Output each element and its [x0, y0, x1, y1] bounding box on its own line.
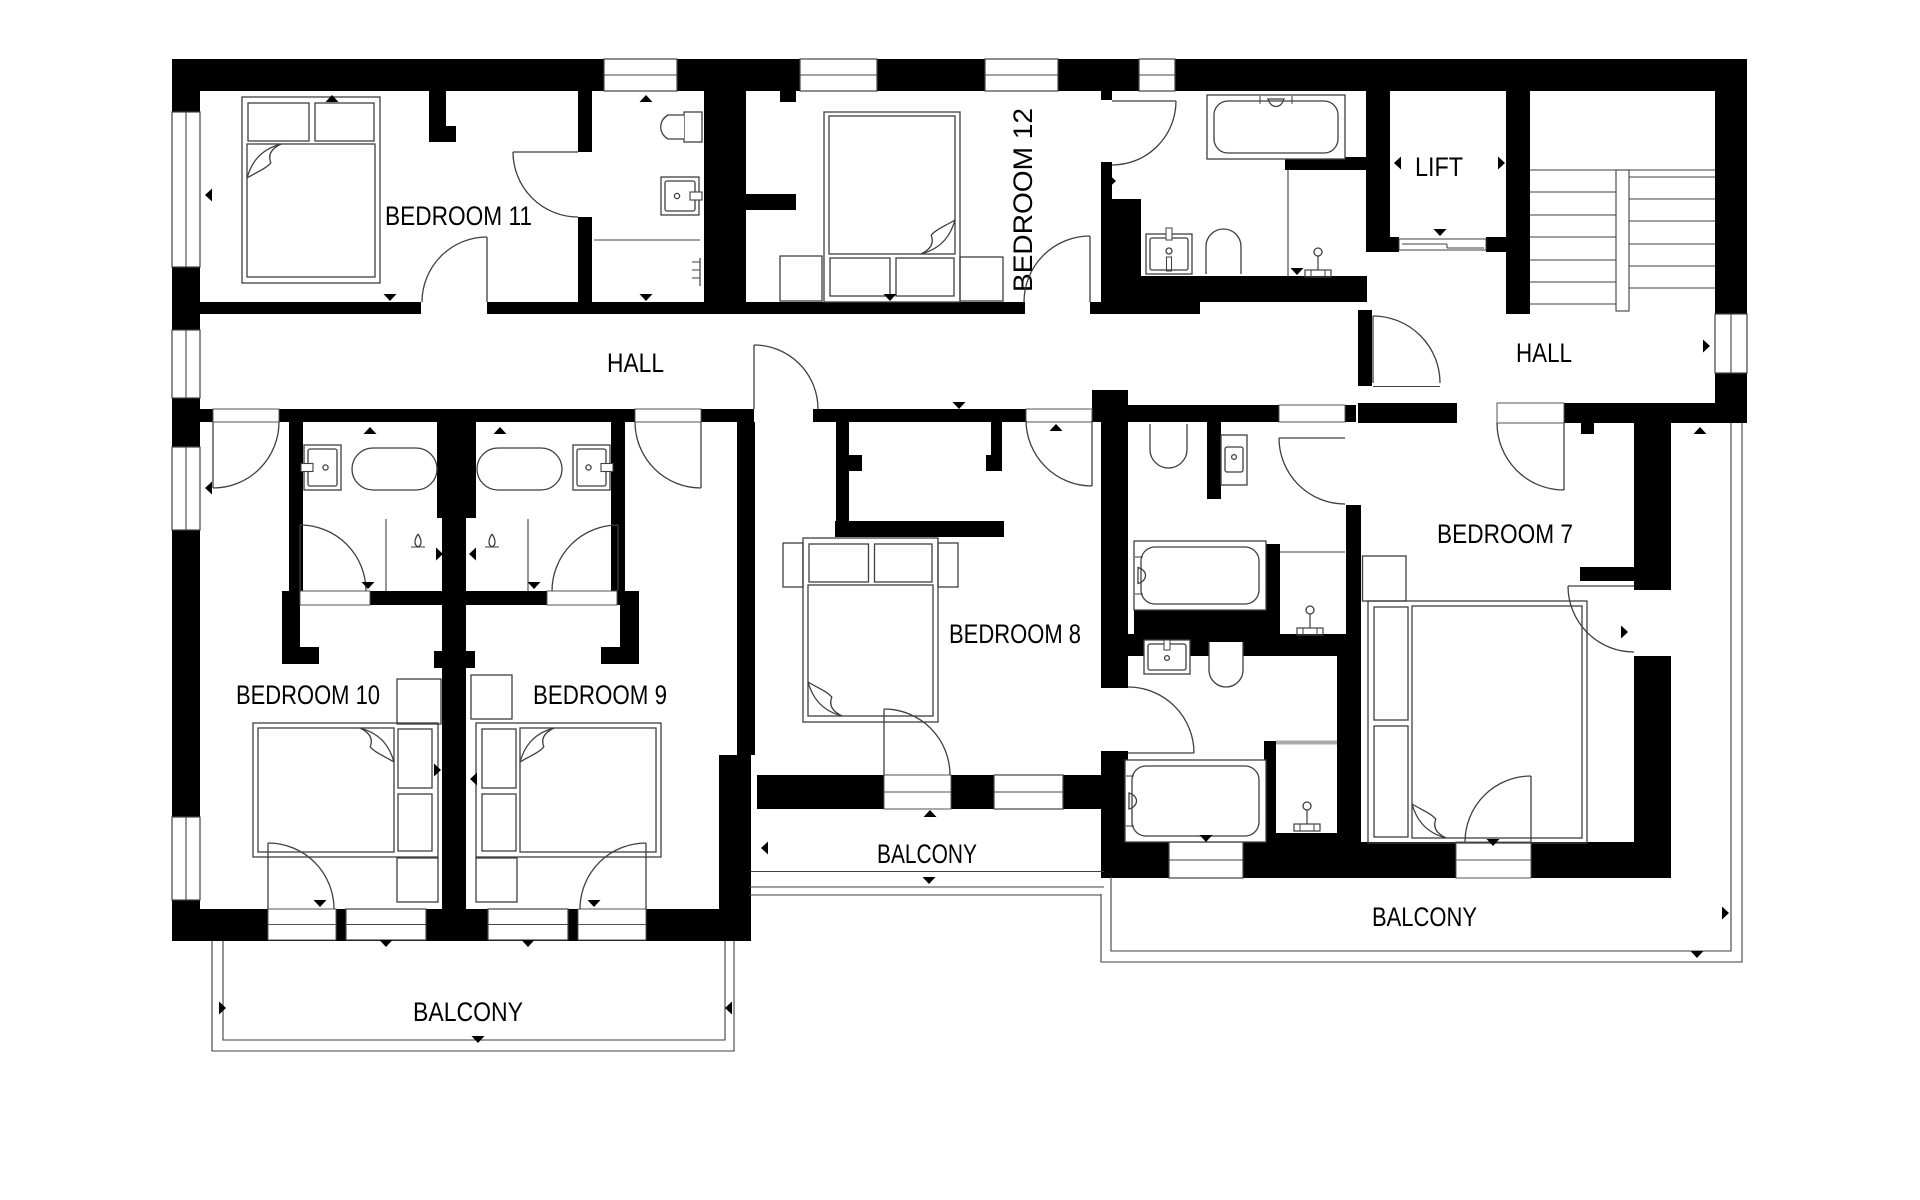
svg-text:BEDROOM 9: BEDROOM 9: [533, 680, 667, 710]
svg-text:BALCONY: BALCONY: [1372, 902, 1477, 932]
svg-text:BEDROOM 8: BEDROOM 8: [949, 619, 1081, 649]
svg-text:BALCONY: BALCONY: [413, 997, 523, 1027]
svg-text:BALCONY: BALCONY: [877, 839, 977, 869]
svg-text:LIFT: LIFT: [1415, 152, 1463, 182]
svg-text:BEDROOM 11: BEDROOM 11: [385, 201, 532, 231]
svg-text:BEDROOM 12: BEDROOM 12: [1008, 108, 1038, 292]
svg-text:BEDROOM 10: BEDROOM 10: [236, 680, 380, 710]
svg-text:HALL: HALL: [1516, 338, 1572, 368]
svg-text:HALL: HALL: [607, 348, 664, 378]
svg-text:BEDROOM 7: BEDROOM 7: [1437, 519, 1573, 549]
